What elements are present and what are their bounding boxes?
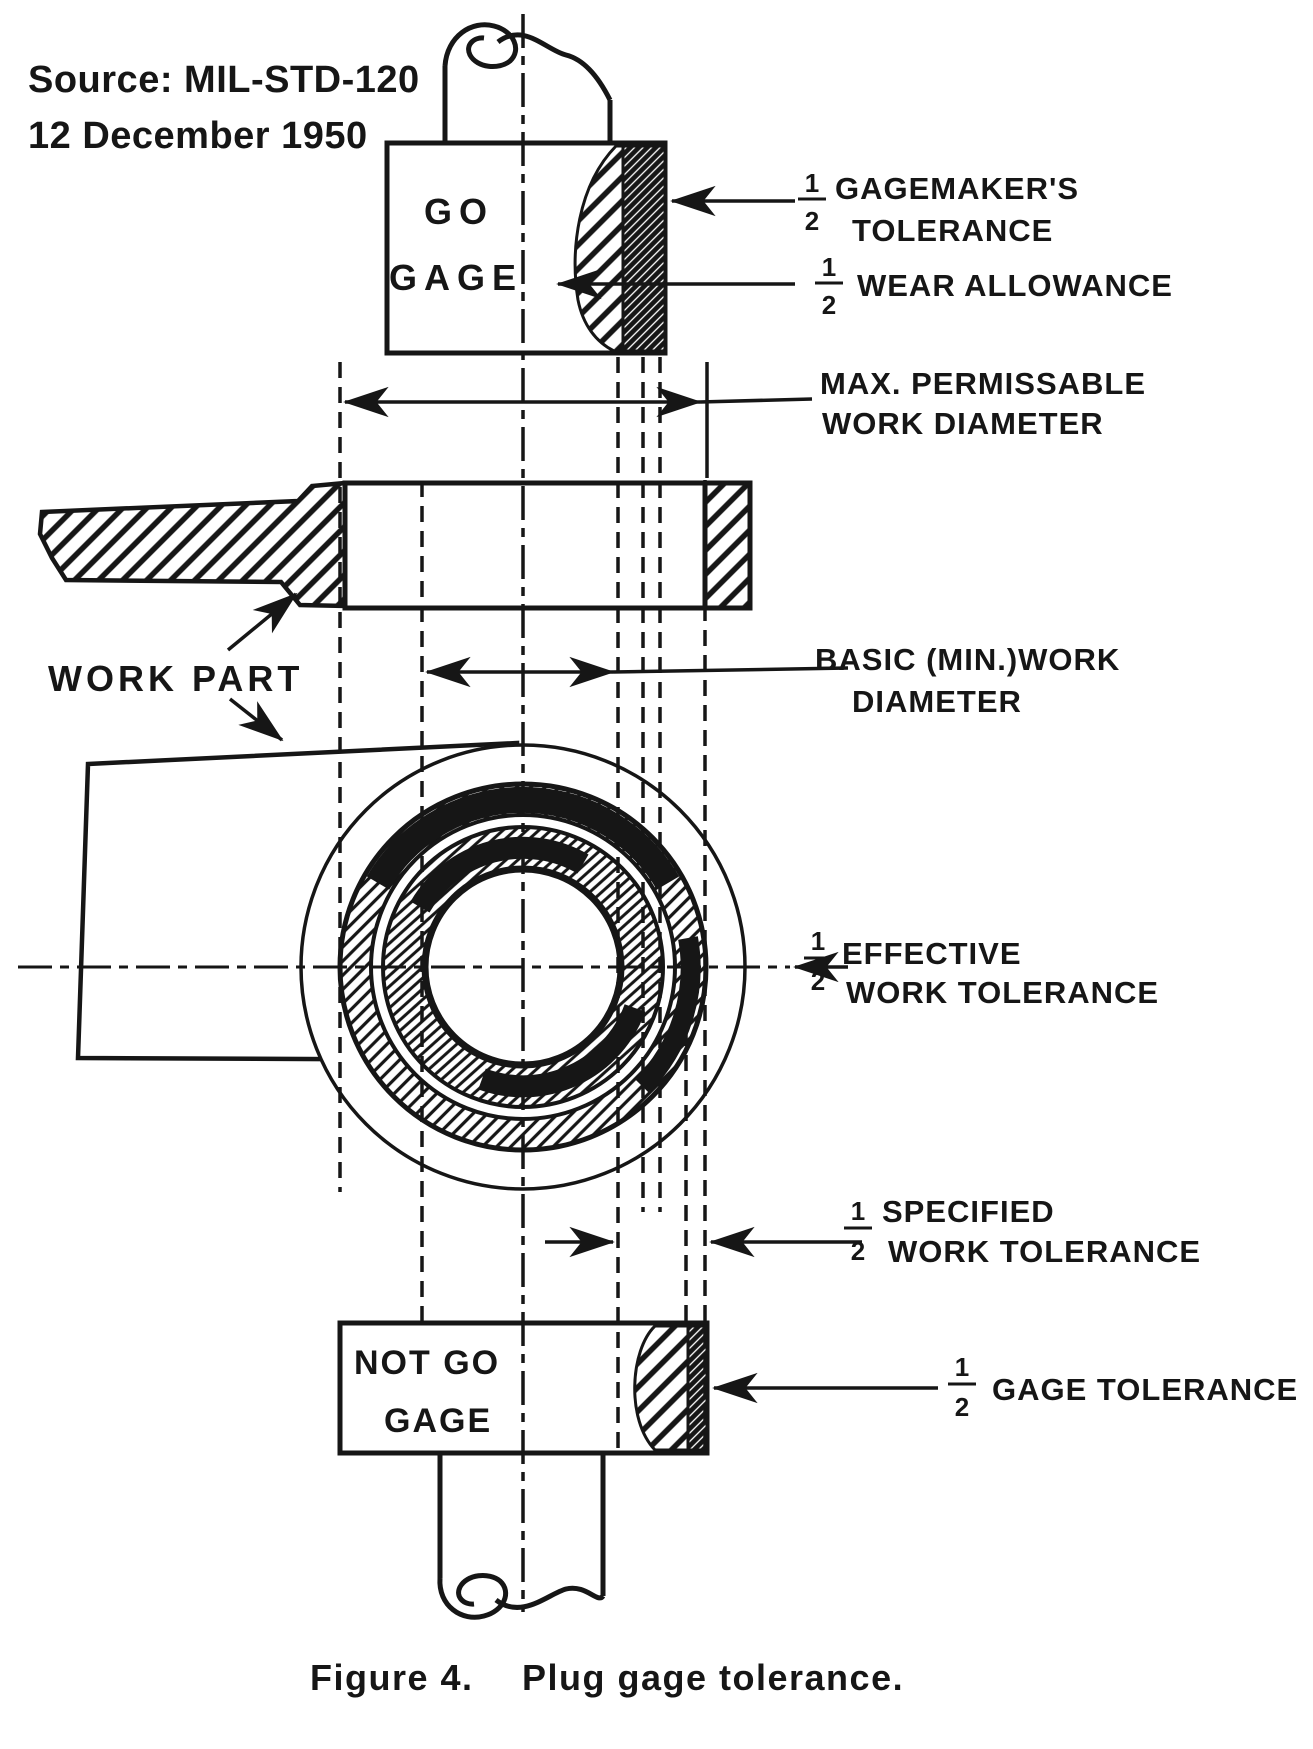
svg-text:DIAMETER: DIAMETER: [852, 684, 1022, 719]
specified-tolerance-label: 1 2 SPECIFIED WORK TOLERANCE: [844, 1194, 1201, 1269]
basic-diameter-leader: [613, 668, 848, 672]
figure-number: Figure 4.: [310, 1657, 474, 1698]
svg-text:WORK TOLERANCE: WORK TOLERANCE: [888, 1234, 1201, 1269]
svg-text:SPECIFIED: SPECIFIED: [882, 1194, 1055, 1229]
svg-text:BASIC (MIN.)WORK: BASIC (MIN.)WORK: [815, 642, 1120, 677]
basic-diameter-label: BASIC (MIN.)WORK DIAMETER: [815, 642, 1120, 719]
plug-gage-top-shank: [445, 25, 610, 143]
fraction-denominator: 2: [822, 290, 836, 320]
not-go-gage-hatch: [635, 1326, 688, 1450]
max-permissible-label: MAX. PERMISSABLE WORK DIAMETER: [820, 366, 1146, 441]
fraction-denominator: 2: [851, 1236, 865, 1266]
svg-text:TOLERANCE: TOLERANCE: [852, 213, 1053, 248]
svg-text:GAGE TOLERANCE: GAGE TOLERANCE: [992, 1372, 1298, 1407]
work-part-pointer-lower: [230, 699, 282, 740]
go-gage-label-line2: GAGE: [389, 257, 523, 298]
work-part-pointer-upper: [228, 594, 296, 650]
figure-title: Plug gage tolerance.: [522, 1657, 904, 1698]
scanned-figure-page: Source: MIL-STD-120 12 December 1950 GO: [0, 0, 1313, 1749]
svg-text:MAX. PERMISSABLE: MAX. PERMISSABLE: [820, 366, 1146, 401]
work-part-ring-hatch-block: [705, 483, 750, 608]
fraction-numerator: 1: [851, 1196, 865, 1226]
svg-text:GAGEMAKER'S: GAGEMAKER'S: [835, 171, 1079, 206]
plug-gage-tolerance-diagram: Source: MIL-STD-120 12 December 1950 GO: [0, 0, 1313, 1749]
work-part-ring-section: [345, 483, 750, 608]
source-note: Source: MIL-STD-120 12 December 1950: [28, 59, 420, 157]
not-go-gage-label-line2: GAGE: [384, 1402, 492, 1440]
effective-tolerance-label: 1 2 EFFECTIVE WORK TOLERANCE: [804, 926, 1159, 1010]
go-gage-tolerance-strip: [623, 146, 665, 351]
fraction-numerator: 1: [811, 926, 825, 956]
go-gage-label-line1: GO: [424, 191, 494, 232]
fraction-numerator: 1: [805, 168, 819, 198]
work-part-label: WORK PART: [48, 658, 303, 699]
source-line-2: 12 December 1950: [28, 115, 368, 157]
fraction-numerator: 1: [822, 252, 836, 282]
svg-text:WEAR ALLOWANCE: WEAR ALLOWANCE: [857, 268, 1173, 303]
figure-caption: Figure 4. Plug gage tolerance.: [310, 1657, 904, 1698]
source-line-1: Source: MIL-STD-120: [28, 59, 420, 101]
max-diameter-leader: [700, 399, 812, 402]
fraction-denominator: 2: [955, 1392, 969, 1422]
fraction-denominator: 2: [811, 966, 825, 996]
svg-text:WORK DIAMETER: WORK DIAMETER: [822, 406, 1104, 441]
fraction-numerator: 1: [955, 1352, 969, 1382]
work-part-flange-arm: [40, 483, 345, 606]
svg-text:EFFECTIVE: EFFECTIVE: [842, 936, 1022, 971]
gage-tolerance-label: 1 2 GAGE TOLERANCE: [948, 1352, 1298, 1422]
fraction-denominator: 2: [805, 206, 819, 236]
wear-allowance-label: 1 2 WEAR ALLOWANCE: [815, 252, 1173, 320]
svg-text:WORK TOLERANCE: WORK TOLERANCE: [846, 975, 1159, 1010]
gagemakers-tolerance-label: 1 2 GAGEMAKER'S TOLERANCE: [798, 168, 1079, 248]
not-go-gage-label-line1: NOT GO: [354, 1344, 500, 1382]
go-gage-box: GO GAGE: [387, 143, 665, 353]
